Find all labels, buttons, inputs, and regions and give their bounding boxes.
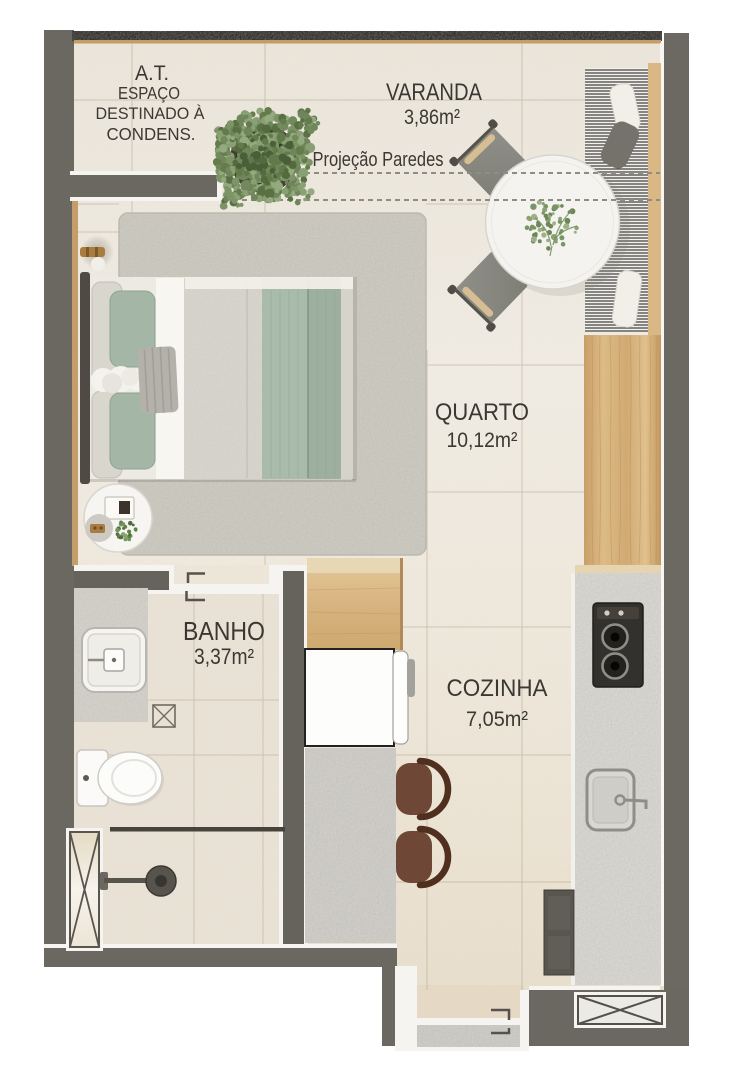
svg-text:7,05m²: 7,05m² [466, 708, 528, 731]
svg-text:A.T.: A.T. [135, 62, 169, 85]
svg-text:CONDENS.: CONDENS. [107, 124, 196, 144]
svg-text:3,86m²: 3,86m² [404, 106, 460, 129]
svg-text:QUARTO: QUARTO [435, 399, 529, 426]
svg-text:DESTINADO À: DESTINADO À [96, 104, 206, 123]
svg-text:10,12m²: 10,12m² [447, 429, 518, 452]
svg-text:3,37m²: 3,37m² [194, 644, 254, 669]
svg-text:VARANDA: VARANDA [386, 79, 482, 106]
svg-text:ESPAÇO: ESPAÇO [118, 83, 180, 103]
svg-text:BANHO: BANHO [183, 616, 265, 646]
svg-text:Projeção Paredes: Projeção Paredes [313, 149, 444, 171]
svg-text:COZINHA: COZINHA [447, 675, 548, 702]
